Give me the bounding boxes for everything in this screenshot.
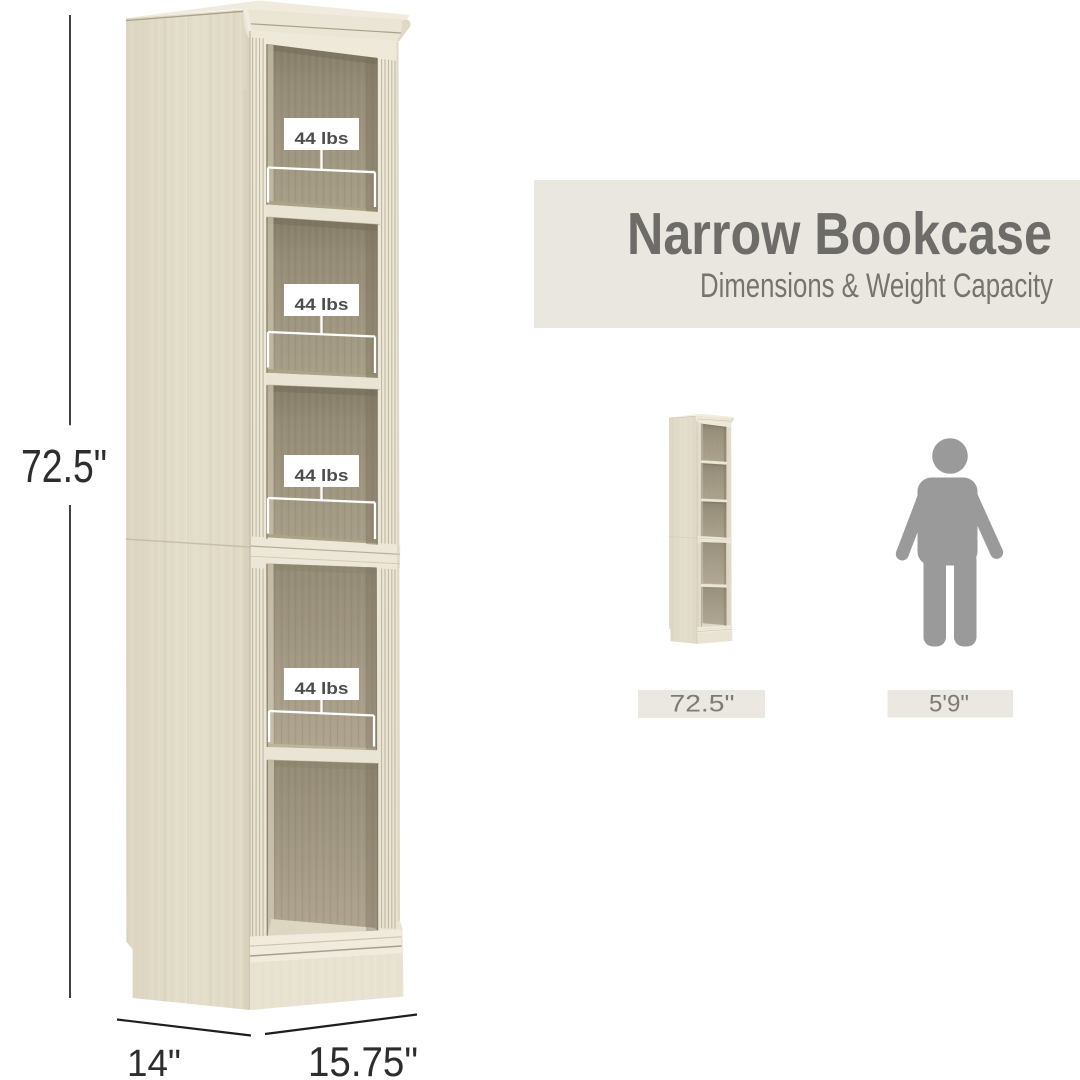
svg-text:44 lbs: 44 lbs — [295, 130, 349, 148]
svg-text:Narrow Bookcase: Narrow Bookcase — [627, 201, 1052, 267]
svg-text:72.5": 72.5" — [670, 691, 735, 718]
svg-text:5'9": 5'9" — [929, 691, 969, 718]
svg-text:14": 14" — [127, 1043, 181, 1080]
svg-text:72.5": 72.5" — [21, 440, 107, 492]
svg-text:Dimensions & Weight Capacity: Dimensions & Weight Capacity — [700, 267, 1053, 305]
svg-text:15.75": 15.75" — [308, 1038, 418, 1080]
svg-text:44 lbs: 44 lbs — [295, 467, 349, 485]
svg-text:44 lbs: 44 lbs — [295, 680, 349, 698]
svg-text:44 lbs: 44 lbs — [295, 296, 349, 314]
